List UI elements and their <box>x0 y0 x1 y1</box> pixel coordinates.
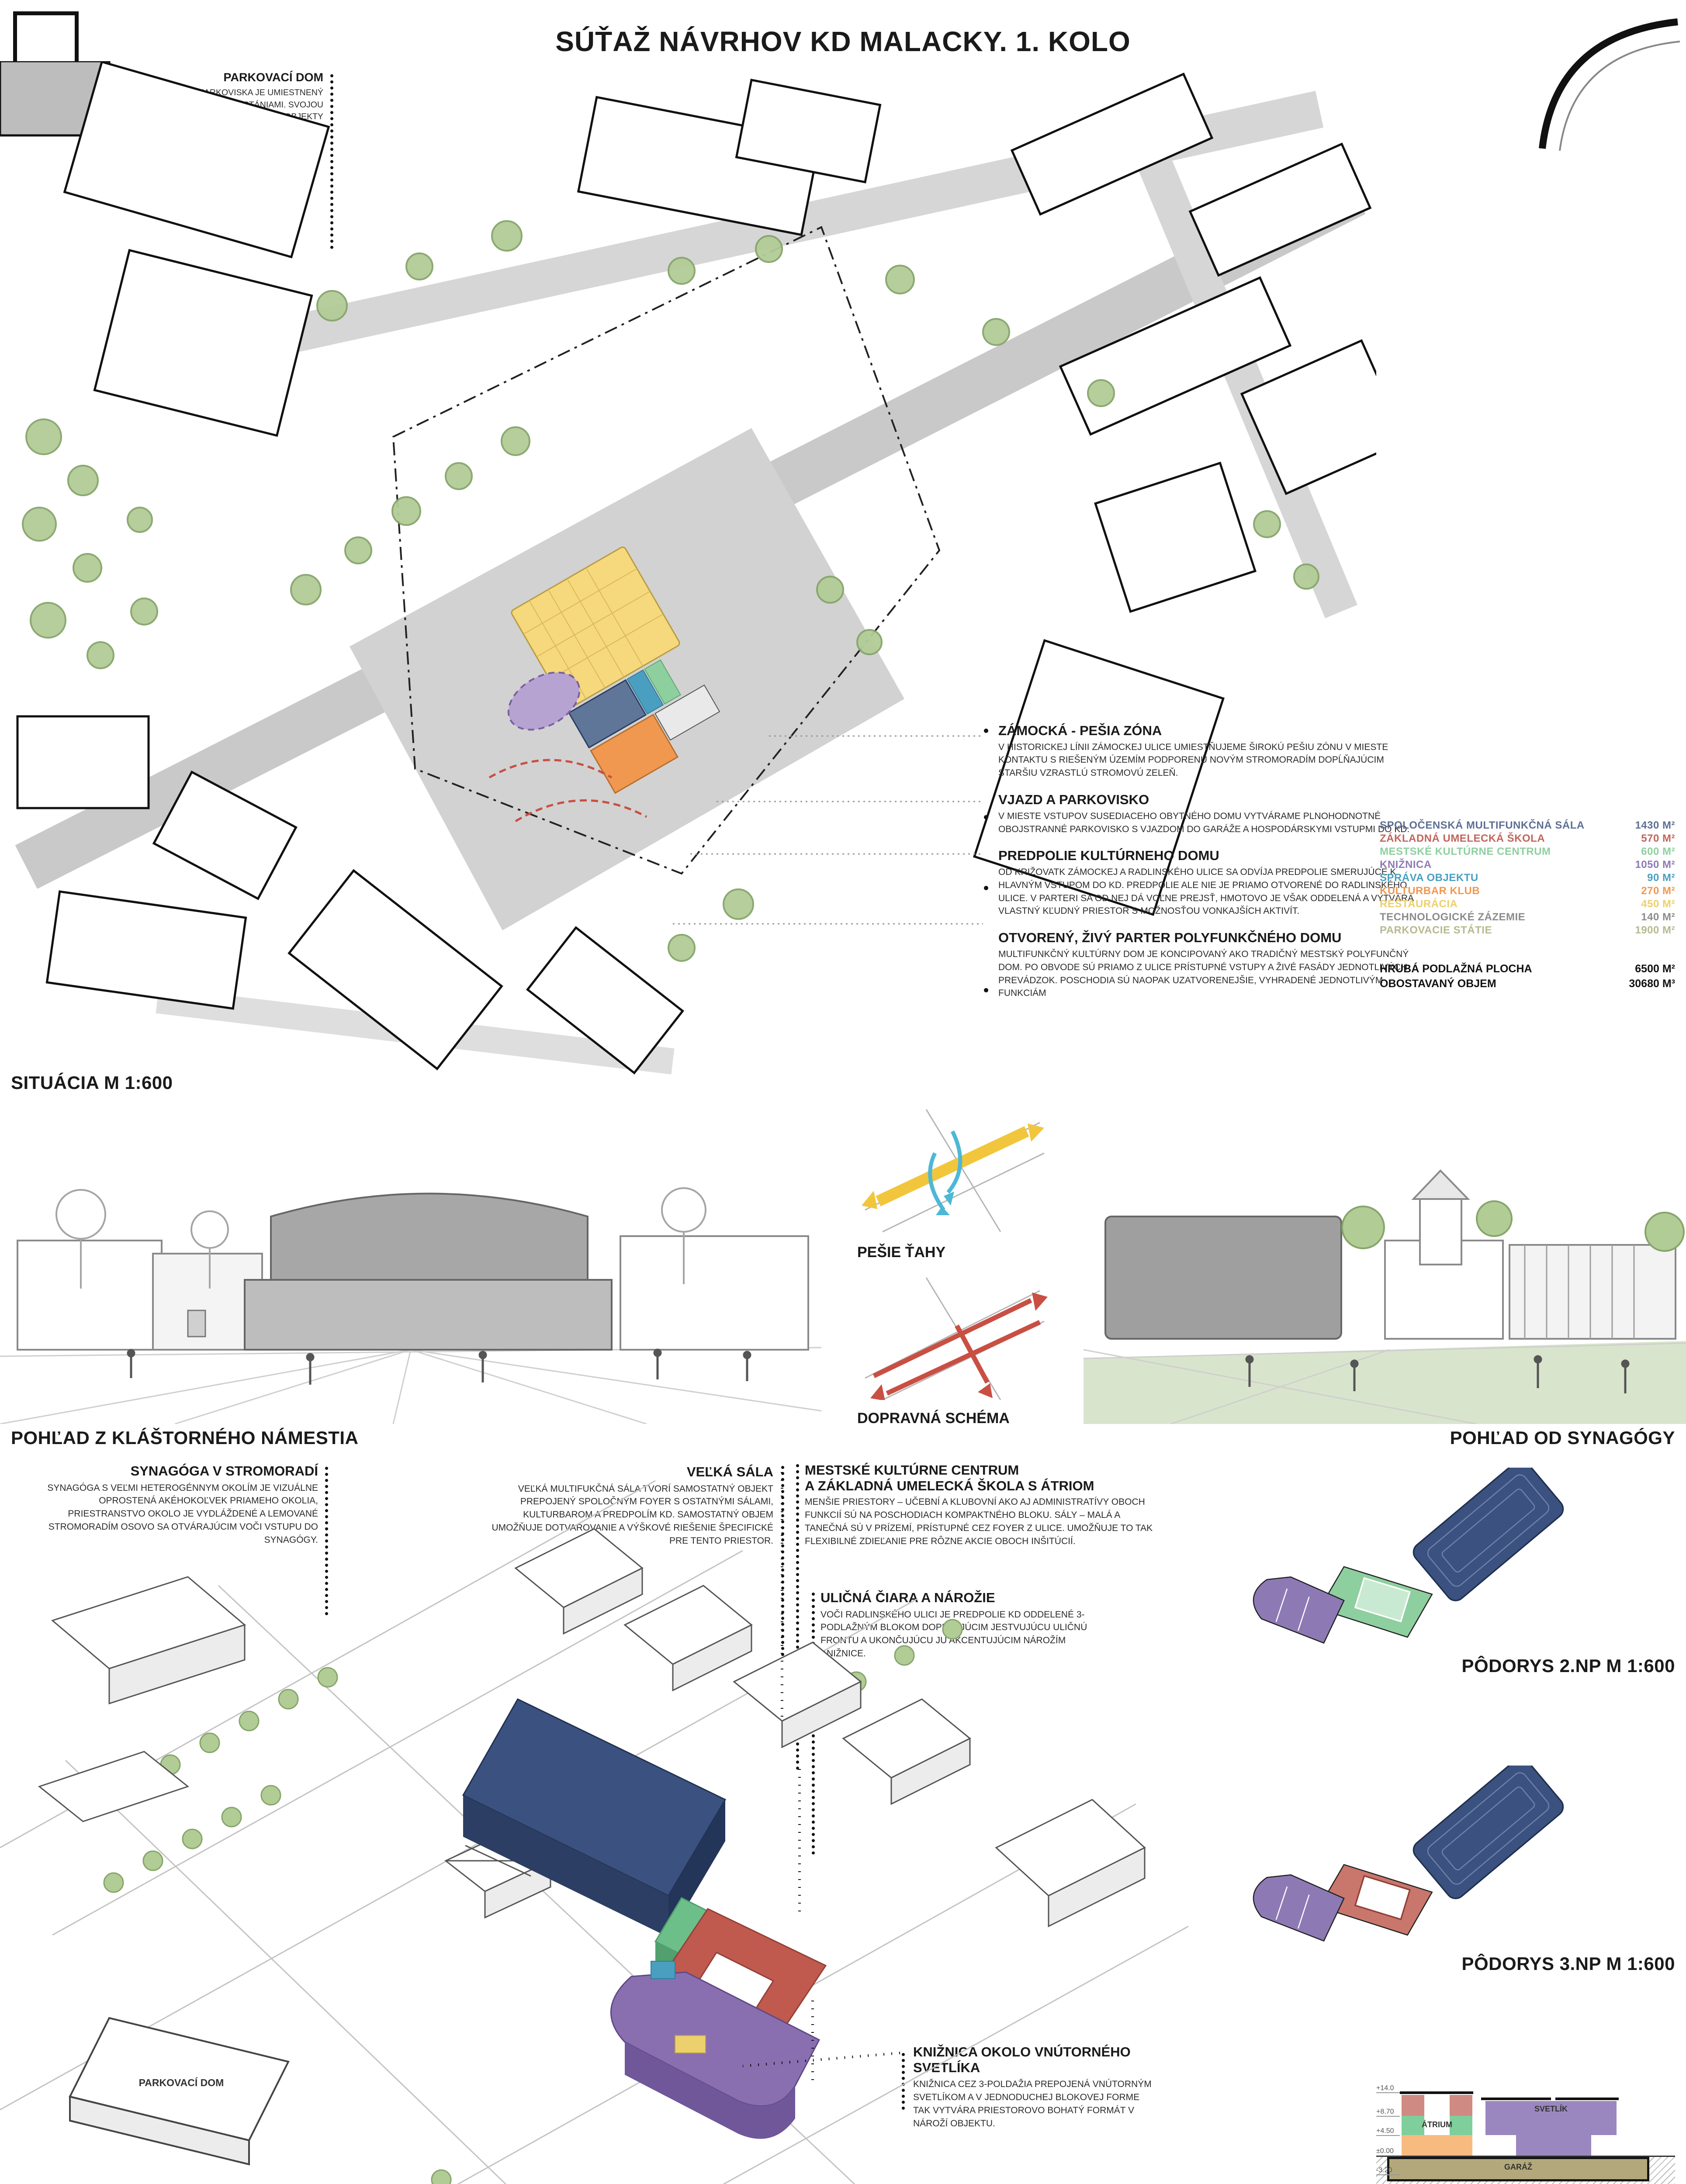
garage-band: GARÁŽ <box>1387 2157 1649 2181</box>
row-label: SPOLOČENSKÁ MULTIFUNKČNÁ SÁLA <box>1380 819 1585 832</box>
level-label: +4.50 <box>1376 2127 1400 2136</box>
row-value: 450 M² <box>1641 898 1675 911</box>
kniznica-wing <box>1253 1875 1344 1941</box>
table-row: ZÁKLADNÁ UMELECKÁ ŠKOLA 570 M² <box>1380 832 1675 845</box>
annotation-title: ZÁMOCKÁ - PEŠIA ZÓNA <box>998 723 1413 739</box>
svetlik-band: SVETLÍK <box>1485 2101 1617 2135</box>
total-value: 6500 M² <box>1635 961 1675 976</box>
row-label: KNIŽNICA <box>1380 858 1432 871</box>
table-row: SPOLOČENSKÁ MULTIFUNKČNÁ SÁLA 1430 M² <box>1380 819 1675 832</box>
row-label: MESTSKÉ KULTÚRNE CENTRUM <box>1380 845 1551 858</box>
room-label-garaz: GARÁŽ <box>1389 2163 1647 2172</box>
statue <box>188 1310 205 1337</box>
annotation-body: OD KRIŽOVATK ZÁMOCKEJ A RADLINSKÉHO ULIC… <box>998 866 1413 918</box>
level-label: ±0.00 <box>1376 2147 1400 2156</box>
ground-line <box>1376 2156 1675 2157</box>
lawn <box>1084 1341 1686 1424</box>
level2-band <box>1402 2116 1424 2135</box>
row-label: TECHNOLOGICKÉ ZÁZEMIE <box>1380 911 1525 924</box>
annotation-body: V MIESTE VSTUPOV SUSEDIACEHO OBYTNÉHO DO… <box>998 810 1413 836</box>
level3-band <box>1402 2095 1424 2116</box>
road-corner-graphic <box>1529 4 1686 153</box>
table-row: KNIŽNICA 1050 M² <box>1380 858 1675 871</box>
floor-plan-2np <box>1232 1468 1599 1651</box>
parkovaci-dom-prism <box>70 2018 288 2164</box>
parapet <box>1481 2098 1551 2100</box>
level-label: +8.70 <box>1376 2108 1400 2117</box>
level2-band <box>1450 2116 1472 2135</box>
annotation-title: VJAZD A PARKOVISKO <box>998 792 1413 808</box>
annotation-body: V HISTORICKEJ LÍNII ZÁMOCKEJ ULICE UMIES… <box>998 741 1413 780</box>
kniznica-wing <box>1253 1577 1344 1643</box>
annotation-title: PREDPOLIE KULTÚRNEHO DOMU <box>998 848 1413 864</box>
table-row: SPRÁVA OBJEKTU 90 M² <box>1380 871 1675 885</box>
axonometric-drawing <box>0 1455 1188 2184</box>
row-label: ZÁKLADNÁ UMELECKÁ ŠKOLA <box>1380 832 1545 845</box>
table-total-row: HRUBÁ PODLAŽNÁ PLOCHA 6500 M² <box>1380 961 1675 976</box>
annotation-bullet <box>984 886 988 890</box>
section-priecny-drawing: GARÁŽ ÁTRIUM SVETLÍK +14.0 +8.70 +4.50 ±… <box>1376 2084 1675 2184</box>
row-label: KULTURBAR KLUB <box>1380 885 1480 898</box>
competition-board: SÚŤAŽ NÁVRHOV KD MALACKY. 1. KOLO PARKOV… <box>0 0 1686 2184</box>
figure-label-pohlad-synagoga: POHĽAD OD SYNAGÓGY <box>1293 1427 1675 1448</box>
row-value: 570 M² <box>1641 832 1675 845</box>
row-value: 270 M² <box>1641 885 1675 898</box>
render-klastorne-namestie <box>0 1105 821 1424</box>
row-value: 600 M² <box>1641 845 1675 858</box>
level3-band <box>1450 2095 1472 2116</box>
table-row: TECHNOLOGICKÉ ZÁZEMIE 140 M² <box>1380 911 1675 924</box>
annotation-zamocka: ZÁMOCKÁ - PEŠIA ZÓNA V HISTORICKEJ LÍNII… <box>998 723 1413 780</box>
figure-label-pesie-tahy: PEŠIE ŤAHY <box>857 1244 945 1261</box>
figure-label-dopravna-schema: DOPRAVNÁ SCHÉMA <box>857 1410 1010 1427</box>
figure-label-podorys2: PÔDORYS 2.NP M 1:600 <box>1413 1655 1675 1676</box>
axon-parkovaci-dom-label: PARKOVACÍ DOM <box>109 2077 253 2089</box>
restauracia-strip <box>675 2035 706 2053</box>
annotation-bullet <box>984 815 988 819</box>
table-row: MESTSKÉ KULTÚRNE CENTRUM 600 M² <box>1380 845 1675 858</box>
annotation-bullet <box>984 729 988 733</box>
table-row: KULTURBAR KLUB 270 M² <box>1380 885 1675 898</box>
render-od-synagogy <box>1084 1105 1686 1424</box>
hall-mass <box>271 1194 588 1289</box>
annotation-column-right: ZÁMOCKÁ - PEŠIA ZÓNA V HISTORICKEJ LÍNII… <box>998 723 1413 1000</box>
ground-floor-band <box>1402 2135 1472 2157</box>
row-label: SPRÁVA OBJEKTU <box>1380 871 1478 885</box>
annotation-bullet <box>984 988 988 992</box>
annotation-predpolie: PREDPOLIE KULTÚRNEHO DOMU OD KRIŽOVATK Z… <box>998 848 1413 918</box>
hall-mass <box>1105 1216 1341 1339</box>
svetlik-lower-band <box>1516 2135 1591 2157</box>
room-label-atrium: ÁTRIUM <box>1422 2120 1452 2129</box>
row-label: REŠTAURÁCIA <box>1380 898 1458 911</box>
figure-label-podorys3: PÔDORYS 3.NP M 1:600 <box>1413 1953 1675 1974</box>
diagram-dopravna-schema <box>856 1273 1049 1400</box>
annotation-vjazd: VJAZD A PARKOVISKO V MIESTE VSTUPOV SUSE… <box>998 792 1413 836</box>
traffic-routes <box>874 1300 1040 1393</box>
row-value: 90 M² <box>1647 871 1675 885</box>
total-label: OBOSTAVANÝ OBJEM <box>1380 976 1496 991</box>
pedestrian-axis <box>878 1131 1027 1201</box>
kd-masses <box>463 1699 826 2139</box>
annotation-body: MULTIFUNKČNÝ KULTÚRNY DOM JE KONCIPOVANÝ… <box>998 948 1413 1000</box>
annotation-parter: OTVORENÝ, ŽIVÝ PARTER POLYFUNKČNÉHO DOMU… <box>998 930 1413 1000</box>
figure-label-pohlad-klastor: POHĽAD Z KLÁŠTORNÉHO NÁMESTIA <box>11 1427 358 1448</box>
row-label: PARKOVACIE STÁTIE <box>1380 924 1492 937</box>
table-row: REŠTAURÁCIA 450 M² <box>1380 898 1675 911</box>
parapet <box>1400 2091 1473 2094</box>
diagram-pesie-tahy <box>856 1105 1049 1236</box>
parapet <box>1555 2098 1619 2100</box>
program-area-table: SPOLOČENSKÁ MULTIFUNKČNÁ SÁLA 1430 M² ZÁ… <box>1380 819 1675 991</box>
annotation-title: OTVORENÝ, ŽIVÝ PARTER POLYFUNKČNÉHO DOMU <box>998 930 1413 946</box>
row-value: 1900 M² <box>1635 924 1675 937</box>
total-value: 30680 M³ <box>1629 976 1675 991</box>
tower <box>1420 1199 1461 1265</box>
page-title: SÚŤAŽ NÁVRHOV KD MALACKY. 1. KOLO <box>0 25 1686 58</box>
room-label-svetlik: SVETLÍK <box>1485 2105 1617 2114</box>
row-value: 1430 M² <box>1635 819 1675 832</box>
people-figures <box>128 1350 750 1385</box>
level-label: -3.20 <box>1376 2167 1400 2175</box>
figure-label-situacia: SITUÁCIA M 1:600 <box>11 1072 173 1093</box>
row-value: 140 M² <box>1641 911 1675 924</box>
total-label: HRUBÁ PODLAŽNÁ PLOCHA <box>1380 961 1532 976</box>
tower-roof <box>1413 1171 1468 1199</box>
table-total-row: OBOSTAVANÝ OBJEM 30680 M³ <box>1380 976 1675 991</box>
floor-plan-3np <box>1232 1766 1599 1949</box>
table-row: PARKOVACIE STÁTIE 1900 M² <box>1380 924 1675 937</box>
row-value: 1050 M² <box>1635 858 1675 871</box>
level-label: +14.0 <box>1376 2084 1400 2093</box>
sprava-strip <box>651 1961 675 1979</box>
